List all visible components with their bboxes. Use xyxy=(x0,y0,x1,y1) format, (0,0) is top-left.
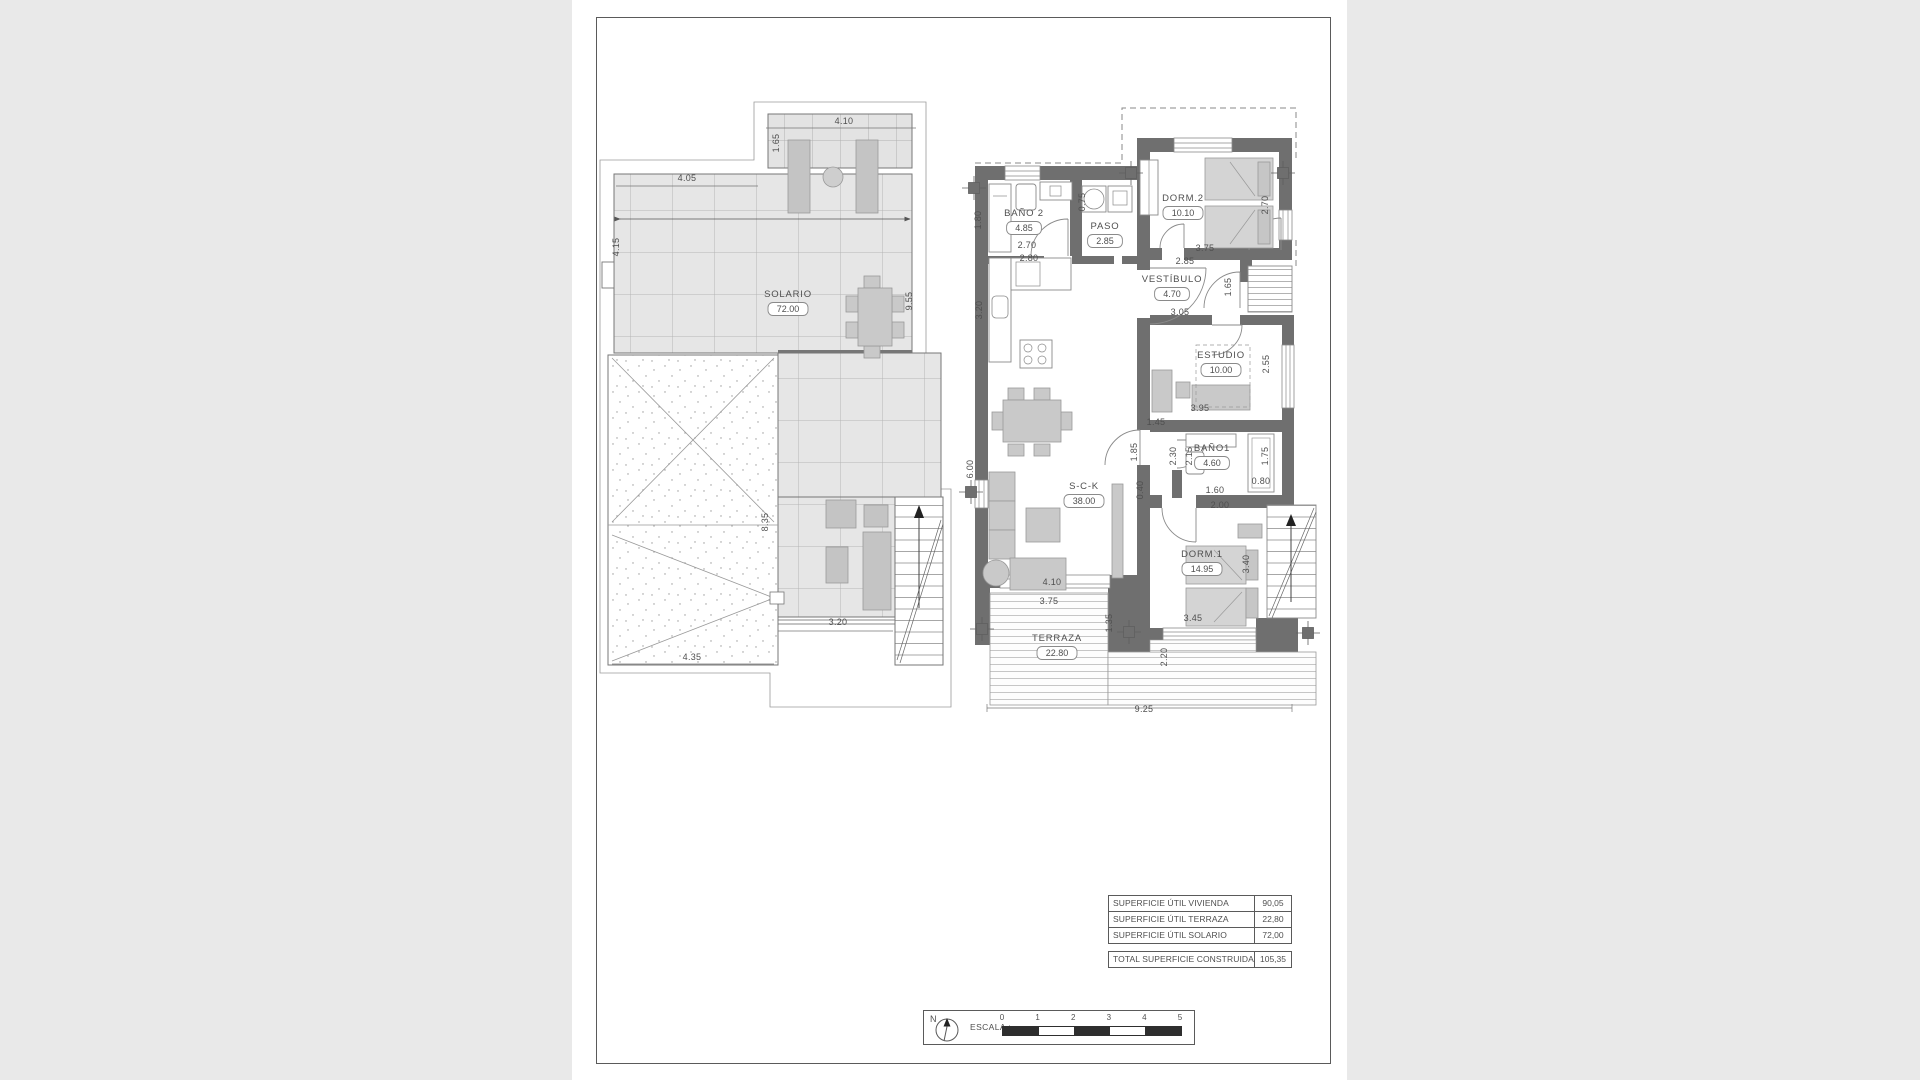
room-area-value: 4.85 xyxy=(1015,223,1033,233)
scale-tick: 2 xyxy=(1063,1013,1083,1022)
room-label: PASO xyxy=(1091,221,1120,232)
dimension-label: 6.00 xyxy=(965,460,975,479)
left-plan-solario xyxy=(600,102,951,707)
room-label: TERRAZA xyxy=(1032,633,1082,644)
dimension-label: 2.30 xyxy=(1168,447,1178,466)
dimension-label: 1.45 xyxy=(1147,417,1166,427)
planter xyxy=(602,262,614,288)
scale-segment xyxy=(1003,1027,1039,1035)
dimension-label: 1.65 xyxy=(771,134,781,153)
room-label: BAÑO1 xyxy=(1194,443,1230,454)
dimension-label: 9.25 xyxy=(1135,704,1154,714)
dimension-label: 1.65 xyxy=(1223,278,1233,297)
stairs-solario xyxy=(895,497,943,665)
total-value: 105,35 xyxy=(1255,952,1291,967)
room-area-value: 22.80 xyxy=(1046,648,1069,658)
dimension-label: 2.00 xyxy=(1211,500,1230,510)
scale-tick: 0 xyxy=(992,1013,1012,1022)
row-label: SUPERFICIE ÚTIL TERRAZA xyxy=(1109,912,1255,927)
dimension-label: 8.35 xyxy=(760,513,770,532)
scale-segment xyxy=(1039,1027,1075,1035)
table-row: SUPERFICIE ÚTIL VIVIENDA 90,05 xyxy=(1109,896,1291,911)
room-area-value: 4.70 xyxy=(1163,289,1181,299)
row-label: SUPERFICIE ÚTIL SOLARIO xyxy=(1109,928,1255,943)
room-area-value: 10.00 xyxy=(1210,365,1233,375)
scale-segment xyxy=(1110,1027,1146,1035)
room-area-value: 14.95 xyxy=(1191,564,1214,574)
room-area-value: 2.85 xyxy=(1096,236,1114,246)
stairs-exterior xyxy=(1267,505,1316,618)
dimension-label: 2.20 xyxy=(1159,648,1169,667)
dimension-label: 0.75 xyxy=(1077,193,1087,212)
room-area-value: 72.00 xyxy=(777,304,800,314)
north-label: N xyxy=(930,1014,937,1024)
north-compass-icon: N xyxy=(927,1012,965,1044)
dimension-label: 1.80 xyxy=(973,211,983,230)
dimension-label: 3.75 xyxy=(1196,243,1215,253)
room-label: VESTÍBULO xyxy=(1142,274,1203,285)
scale-tick: 5 xyxy=(1170,1013,1190,1022)
dimension-label: 0.40 xyxy=(1135,481,1145,500)
dimension-label: 4.35 xyxy=(683,652,702,662)
dimension-label: 4.05 xyxy=(678,173,697,183)
dimension-label: 3.20 xyxy=(829,617,848,627)
dimension-label: 4.15 xyxy=(611,238,621,257)
row-value: 22,80 xyxy=(1255,912,1291,927)
room-label: BAÑO 2 xyxy=(1004,208,1044,219)
row-value: 72,00 xyxy=(1255,928,1291,943)
scale-segment xyxy=(1145,1027,1181,1035)
room-label: ESTUDIO xyxy=(1197,350,1245,361)
room-label: SOLARIO xyxy=(764,289,812,300)
scale-bar: N ESCALA : 0 1 2 3 4 5 xyxy=(923,1010,1195,1045)
scale-segment xyxy=(1074,1027,1110,1035)
dimension-label: 3.20 xyxy=(974,301,984,320)
scale-tick: 4 xyxy=(1134,1013,1154,1022)
dimension-label: 2.85 xyxy=(1176,256,1195,266)
areas-table-rows: SUPERFICIE ÚTIL VIVIENDA 90,05 SUPERFICI… xyxy=(1108,895,1292,944)
table-row: TOTAL SUPERFICIE CONSTRUIDA 105,35 xyxy=(1109,952,1291,967)
total-label: TOTAL SUPERFICIE CONSTRUIDA xyxy=(1109,952,1255,967)
dimension-label: 3.40 xyxy=(1241,555,1251,574)
room-area-value: 4.60 xyxy=(1203,458,1221,468)
dimension-label: 3.95 xyxy=(1191,403,1210,413)
dimension-label: 3.75 xyxy=(1040,596,1059,606)
scale-segments xyxy=(1002,1026,1182,1036)
room-label: DORM.1 xyxy=(1181,549,1223,560)
dimension-label: 3.05 xyxy=(1171,307,1190,317)
floor-plan-canvas: SOLARIO72.00BAÑO 24.85PASO2.85DORM.210.1… xyxy=(0,0,1920,1080)
row-label: SUPERFICIE ÚTIL VIVIENDA xyxy=(1109,896,1255,911)
room-area-value: 10.10 xyxy=(1172,208,1195,218)
areas-table-total: TOTAL SUPERFICIE CONSTRUIDA 105,35 xyxy=(1108,951,1292,968)
room-area-value: 38.00 xyxy=(1073,496,1096,506)
dimension-label: 4.10 xyxy=(835,116,854,126)
row-value: 90,05 xyxy=(1255,896,1291,911)
room-label: S-C-K xyxy=(1069,481,1099,492)
dimension-label: 1.75 xyxy=(1260,447,1270,466)
dimension-label: 2.80 xyxy=(1020,253,1039,263)
dimension-label: 1.35 xyxy=(1104,614,1114,633)
table-row: SUPERFICIE ÚTIL SOLARIO 72,00 xyxy=(1109,927,1291,943)
areas-table: SUPERFICIE ÚTIL VIVIENDA 90,05 SUPERFICI… xyxy=(1108,895,1292,968)
dimension-label: 9.55 xyxy=(904,292,914,311)
pergola-area xyxy=(608,355,784,665)
room-label: DORM.2 xyxy=(1162,193,1204,204)
dimension-label: 2.70 xyxy=(1018,240,1037,250)
dimension-label: 2.15 xyxy=(1184,447,1194,466)
dimension-label: 0.80 xyxy=(1252,476,1271,486)
plan-drawing: SOLARIO72.00BAÑO 24.85PASO2.85DORM.210.1… xyxy=(0,0,1920,1080)
dimension-label: 3.45 xyxy=(1184,613,1203,623)
dimension-label: 1.85 xyxy=(1129,443,1139,462)
dimension-label: 4.10 xyxy=(1043,577,1062,587)
entry-steps xyxy=(1248,266,1292,312)
scale-tick: 1 xyxy=(1028,1013,1048,1022)
dimension-label: 2.55 xyxy=(1261,355,1271,374)
dimension-label: 1.60 xyxy=(1206,485,1225,495)
dimension-label: 2.70 xyxy=(1260,196,1270,215)
table-row: SUPERFICIE ÚTIL TERRAZA 22,80 xyxy=(1109,911,1291,927)
scale-tick: 3 xyxy=(1099,1013,1119,1022)
